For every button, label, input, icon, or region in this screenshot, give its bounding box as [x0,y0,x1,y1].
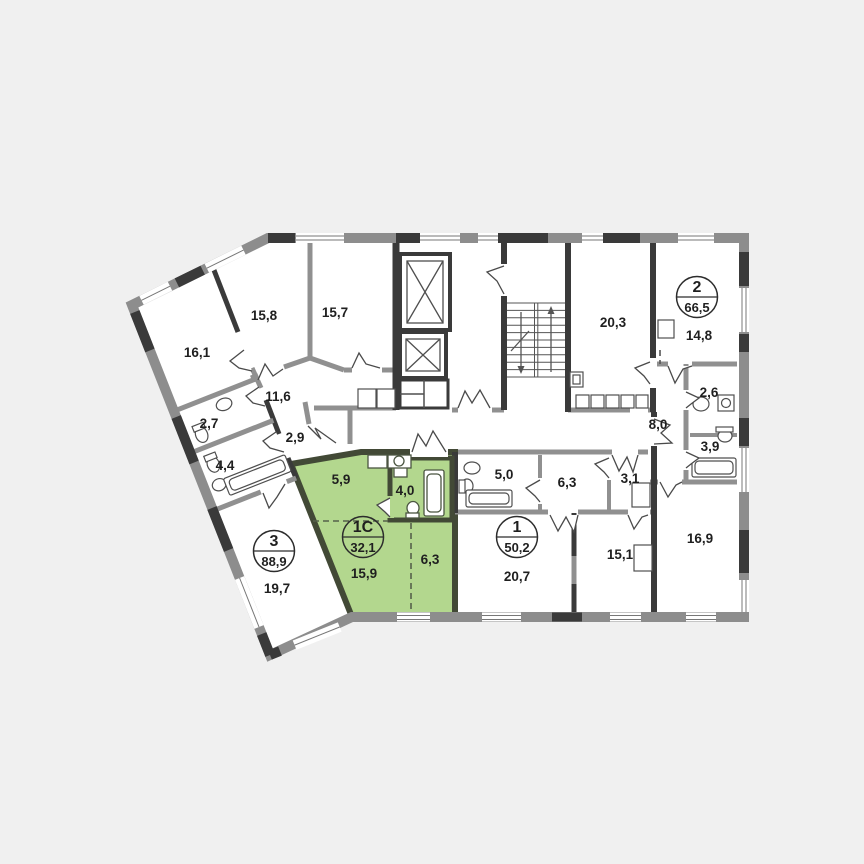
room-label-4-0: 4,0 [396,483,415,498]
room-label-20-3: 20,3 [600,315,627,330]
apartment-number: 1 [513,519,522,536]
kitchen-counter [368,455,387,468]
room-label-5-9: 5,9 [332,472,351,487]
room-label-3-9: 3,9 [701,439,720,454]
closet [658,320,674,338]
apartment-area: 50,2 [504,540,529,555]
room-label-3-1: 3,1 [621,471,640,486]
apartment-number: 3 [270,533,279,550]
apartment-area: 32,1 [350,540,375,555]
utility-cabinet [358,389,376,408]
kitchen-sink-icon [394,456,404,466]
kitchen-counter [576,395,589,408]
room-label-15-7: 15,7 [322,305,348,320]
apartment-area: 88,9 [261,554,286,569]
room-label-5-0: 5,0 [495,467,514,482]
room-label-2-7: 2,7 [200,416,219,431]
apartment-area: 66,5 [684,300,709,315]
room-label-11-6: 11,6 [265,389,291,404]
room-label-16-9: 16,9 [687,531,713,546]
floor-plan: 16,1 15,8 15,7 11,6 2,7 4,4 2,9 19,7 20,… [0,0,864,864]
room-label-2-9: 2,9 [286,430,305,445]
closet [632,483,650,507]
room-label-2-6: 2,6 [700,385,719,400]
apartment-number: 1С [353,519,374,536]
closet [634,545,652,571]
room-label-15-1: 15,1 [607,547,634,562]
apartment-number: 2 [693,279,702,296]
sink-icon [464,462,480,474]
floor-plan-page: 16,1 15,8 15,7 11,6 2,7 4,4 2,9 19,7 20,… [0,0,864,864]
room-label-16-1: 16,1 [184,345,211,360]
room-label-15-9: 15,9 [351,566,377,581]
apartment-badge-1c[interactable]: 1С 32,1 [343,517,384,558]
room-label-14-8: 14,8 [686,328,713,343]
room-label-6-3b: 6,3 [421,552,440,567]
room-label-20-7: 20,7 [504,569,530,584]
apartment-badge-2: 2 66,5 [677,277,718,318]
room-label-8-0: 8,0 [649,417,668,432]
room-label-4-4: 4,4 [216,458,235,473]
apartment-badge-3: 3 88,9 [254,531,295,572]
room-label-15-8: 15,8 [251,308,278,323]
room-label-6-3a: 6,3 [558,475,577,490]
apartment-badge-1: 1 50,2 [497,517,538,558]
room-label-19-7: 19,7 [264,581,290,596]
